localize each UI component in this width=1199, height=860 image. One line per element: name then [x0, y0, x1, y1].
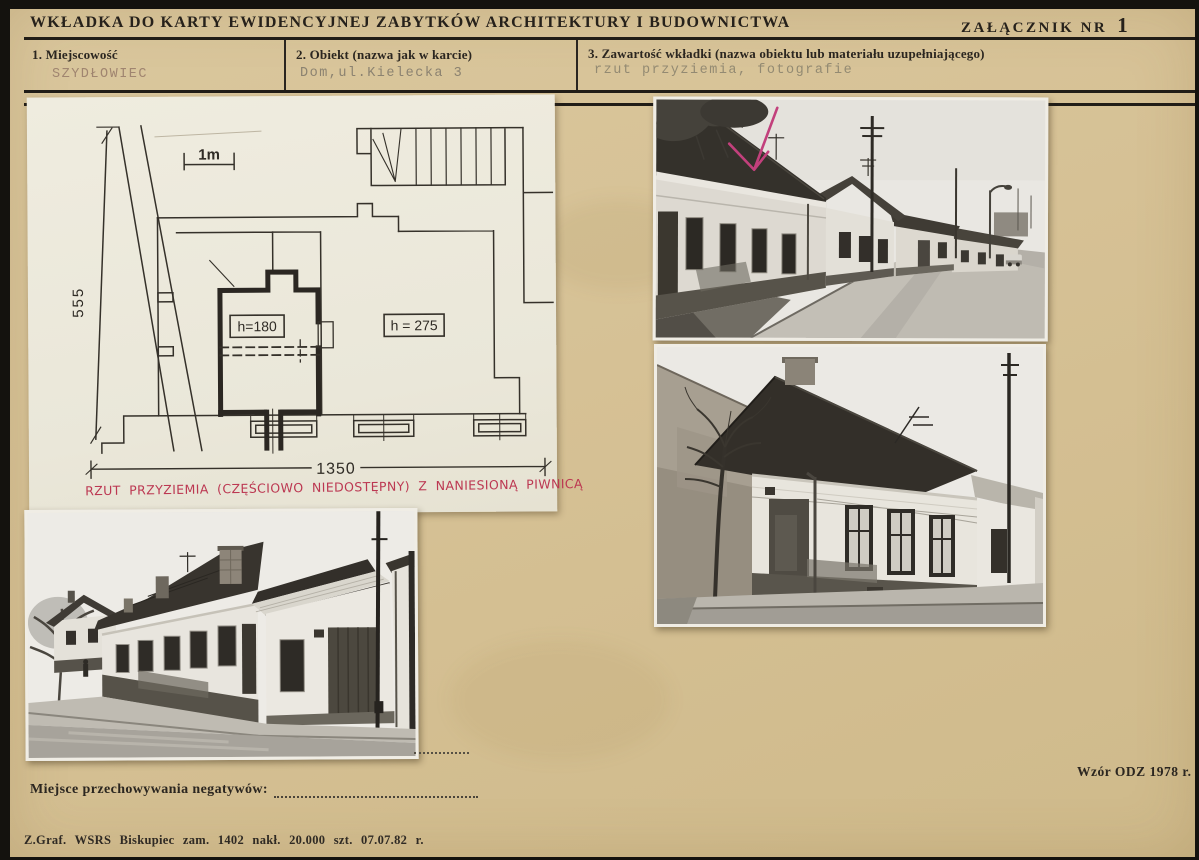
field-contents-label: 3. Zawartość wkładki (nazwa obiektu lub … [588, 46, 985, 62]
attachment-label: ZAŁĄCZNIK NR [961, 20, 1107, 36]
photo1-image [656, 99, 1046, 338]
plan-dim-width-label: 1350 [316, 461, 356, 478]
field-object-label: 2. Obiekt (nazwa jak w karcie) [296, 47, 472, 63]
floor-plan-sheet: 1m 555 h=180 h = 275 1350 RZUT PRZYZIEMI… [27, 94, 558, 514]
negatives-line: Miejsce przechowywania negatywów: [30, 781, 478, 798]
room-height-left-label: h=180 [237, 318, 277, 334]
attachment-header: ZAŁĄCZNIK NR1 [961, 13, 1129, 38]
photo3-image [27, 511, 415, 758]
header-rule [24, 37, 1195, 40]
photo-street-corner-view [24, 508, 418, 761]
field-contents-value: rzut przyziemia, fotografie [594, 63, 853, 78]
negatives-label: Miejsce przechowywania negatywów: [30, 782, 268, 798]
room-height-right-label: h = 275 [391, 317, 438, 333]
photo-house-front-view [654, 344, 1046, 627]
floor-plan-drawing: 1m 555 h=180 h = 275 1350 [27, 94, 558, 514]
attachment-number: 1 [1117, 13, 1129, 37]
field-separator [284, 40, 286, 92]
document-title: WKŁADKA DO KARTY EWIDENCYJNEJ ZABYTKÓW A… [30, 14, 790, 32]
plan-linework [84, 123, 554, 478]
cellar-thick-walls [220, 272, 319, 449]
form-pattern-note: Wzór ODZ 1978 r. [1077, 764, 1192, 780]
plan-dim-height-label: 555 [70, 287, 87, 318]
print-shop-note: Z.Graf. WSRS Biskupiec zam. 1402 nakł. 2… [24, 833, 424, 848]
dotted-line-fragment [414, 740, 469, 754]
photo2-image [657, 347, 1043, 624]
plan-scale-label: 1m [198, 146, 220, 163]
photo-street-view-annotated [653, 96, 1049, 341]
field-locality-label: 1. Miejscowość [32, 47, 118, 63]
field-locality-value: SZYDŁOWIEC [52, 67, 148, 82]
field-object-value: Dom,ul.Kielecka 3 [300, 66, 463, 81]
field-separator [576, 40, 578, 92]
negatives-dotted-line [274, 781, 478, 798]
scanned-record-card-page: { "document": { "title": "WKŁADKA DO KAR… [0, 0, 1199, 860]
